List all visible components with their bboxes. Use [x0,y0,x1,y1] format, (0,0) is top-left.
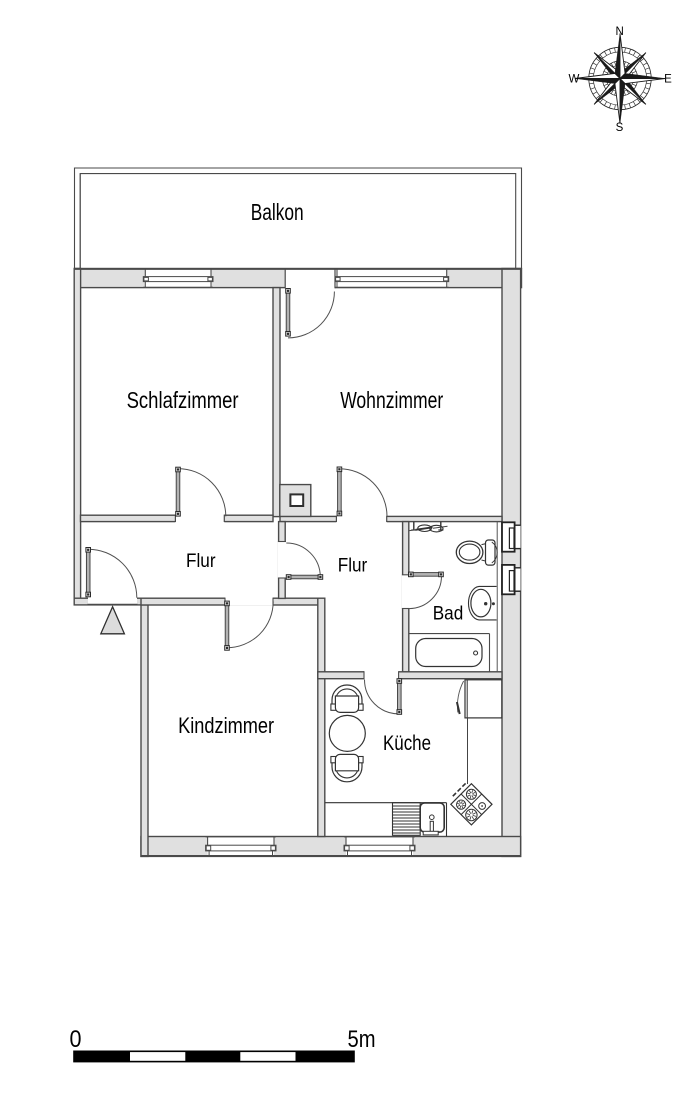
svg-text:E: E [664,74,672,86]
svg-text:S: S [616,122,624,134]
svg-text:0: 0 [70,1026,82,1053]
svg-text:N: N [616,26,624,38]
svg-text:Schlafzimmer: Schlafzimmer [127,387,239,413]
svg-text:Flur: Flur [338,555,368,577]
svg-text:Balkon: Balkon [251,199,304,225]
svg-text:W: W [568,74,579,86]
svg-text:Kindzimmer: Kindzimmer [178,713,274,738]
svg-text:5m: 5m [348,1026,376,1053]
svg-text:Flur: Flur [186,550,216,572]
svg-text:Wohnzimmer: Wohnzimmer [340,387,443,413]
svg-text:Küche: Küche [383,731,431,755]
svg-text:Bad: Bad [433,603,464,625]
